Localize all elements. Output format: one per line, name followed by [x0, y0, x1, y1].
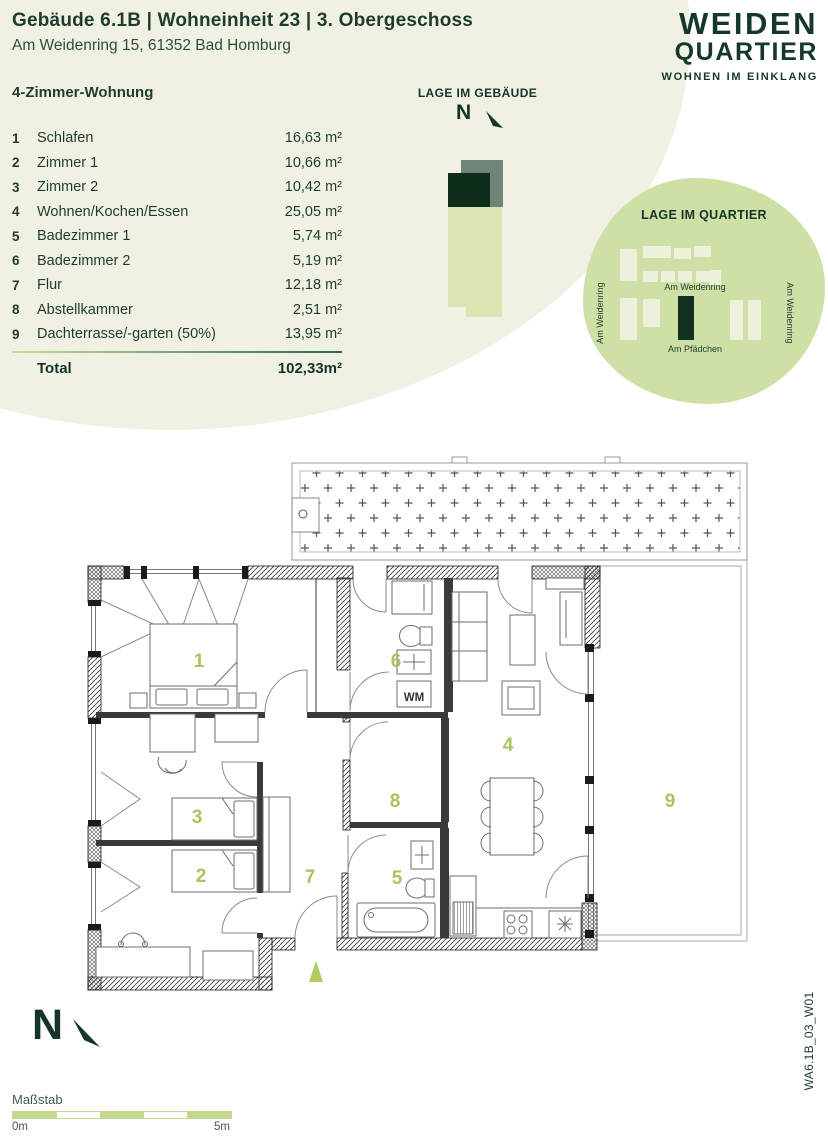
- room-name: Badezimmer 2: [37, 253, 293, 269]
- room-number: 3: [12, 180, 37, 195]
- table-row: 7Flur12,18 m²: [12, 273, 342, 298]
- apartment-type-label: 4-Zimmer-Wohnung: [12, 84, 153, 101]
- room-area: 16,63 m²: [285, 130, 342, 146]
- quarter-building: [620, 249, 637, 281]
- quarter-building: [643, 299, 660, 327]
- plan-room-number-4: 4: [503, 735, 514, 756]
- roof-garden: [292, 457, 747, 560]
- table-row: 9Dachterrasse/-garten (50%)13,95 m²: [12, 322, 342, 347]
- room-name: Zimmer 1: [37, 155, 285, 171]
- room-number: 5: [12, 229, 37, 244]
- table-row: 3Zimmer 210,42 m²: [12, 175, 342, 200]
- quarter-building: [643, 246, 671, 258]
- plan-room-number-3: 3: [192, 807, 203, 828]
- scale-segment: [57, 1112, 101, 1118]
- plan-room-number-7: 7: [305, 867, 316, 888]
- table-row: 2Zimmer 110,66 m²: [12, 151, 342, 176]
- plan-code: WA6.1B_03_W01: [802, 980, 816, 1102]
- street-label-left: Am Weidenring: [595, 268, 605, 358]
- scale-segment: [100, 1112, 144, 1118]
- compass-north-letter: N: [32, 1004, 63, 1047]
- total-row: Total 102,33m²: [12, 353, 342, 385]
- scale-label: Maßstab: [12, 1092, 63, 1107]
- logo-word-weiden: WEIDEN: [662, 8, 818, 39]
- table-row: 1Schlafen16,63 m²: [12, 126, 342, 151]
- address-line: Am Weidenring 15, 61352 Bad Homburg: [12, 37, 291, 55]
- quarter-building: [674, 248, 691, 259]
- room-area: 2,51 m²: [293, 302, 342, 318]
- room-number: 7: [12, 278, 37, 293]
- table-row: 4Wohnen/Kochen/Essen25,05 m²: [12, 200, 342, 225]
- entrance-triangle-icon: [309, 961, 323, 982]
- quarter-map-blob: LAGE IM QUARTIER Am Weidenring Am Pfädch…: [583, 178, 825, 404]
- quarter-building: [730, 300, 743, 340]
- table-row: 5Badezimmer 15,74 m²: [12, 224, 342, 249]
- quarter-building: [661, 271, 675, 282]
- room-number: 8: [12, 302, 37, 317]
- total-area: 102,33m²: [278, 360, 342, 377]
- room-number: 4: [12, 204, 37, 219]
- building-block-unit: [448, 173, 490, 210]
- brand-logo: WEIDEN QUARTIER WOHNEN IM EINKLANG: [662, 8, 818, 83]
- building-north-letter: N: [456, 101, 471, 125]
- room-area: 5,19 m²: [293, 253, 342, 269]
- scale-start-label: 0m: [12, 1121, 28, 1133]
- room-area: 13,95 m²: [285, 326, 342, 342]
- building-location-title: LAGE IM GEBÄUDE: [400, 86, 555, 100]
- quarter-building: [678, 271, 692, 282]
- room-name: Schlafen: [37, 130, 285, 146]
- room-name: Dachterrasse/-garten (50%): [37, 326, 285, 342]
- room-name: Wohnen/Kochen/Essen: [37, 204, 285, 220]
- room-number: 9: [12, 327, 37, 342]
- logo-word-quartier: QUARTIER: [662, 39, 818, 66]
- scale-end-label: 5m: [214, 1121, 230, 1133]
- plan-room-number-9: 9: [665, 791, 676, 812]
- plan-room-number-1: 1: [194, 651, 205, 672]
- quarter-building: [748, 300, 761, 340]
- quarter-building-highlight: [678, 296, 694, 340]
- room-table: 1Schlafen16,63 m² 2Zimmer 110,66 m² 3Zim…: [12, 126, 342, 385]
- quarter-building: [696, 271, 710, 282]
- page-title: Gebäude 6.1B | Wohneinheit 23 | 3. Oberg…: [12, 10, 473, 32]
- street-label-right: Am Weidenring: [785, 268, 795, 358]
- terrace-boundary: [594, 560, 747, 941]
- logo-tagline: WOHNEN IM EINKLANG: [662, 71, 818, 83]
- table-row: 8Abstellkammer2,51 m²: [12, 298, 342, 323]
- street-label-bottom: Am Pfädchen: [640, 344, 750, 354]
- building-block-light-step: [466, 305, 502, 317]
- table-row: 6Badezimmer 25,19 m²: [12, 249, 342, 274]
- room-number: 1: [12, 131, 37, 146]
- building-block-light: [448, 207, 502, 307]
- scale-segment: [13, 1112, 57, 1118]
- room-number: 2: [12, 155, 37, 170]
- room-area: 5,74 m²: [293, 228, 342, 244]
- room-number: 6: [12, 253, 37, 268]
- plan-room-number-8: 8: [390, 791, 401, 812]
- quarter-building: [643, 271, 658, 282]
- room-name: Abstellkammer: [37, 302, 293, 318]
- room-name: Badezimmer 1: [37, 228, 293, 244]
- quarter-location-title: LAGE IM QUARTIER: [583, 208, 825, 222]
- floorplan-document: Gebäude 6.1B | Wohneinheit 23 | 3. Oberg…: [0, 0, 828, 1143]
- north-needle-large-icon: [73, 1019, 100, 1047]
- plan-room-number-2: 2: [196, 866, 207, 887]
- room-name: Flur: [37, 277, 285, 293]
- room-area: 10,42 m²: [285, 179, 342, 195]
- room-name: Zimmer 2: [37, 179, 285, 195]
- scale-segment: [187, 1112, 231, 1118]
- street-label-center: Am Weidenring: [640, 282, 750, 292]
- quarter-building: [620, 298, 637, 340]
- room-area: 25,05 m²: [285, 204, 342, 220]
- room-area: 12,18 m²: [285, 277, 342, 293]
- plan-room-number-5: 5: [392, 868, 403, 889]
- washing-machine-label: WM: [404, 692, 424, 704]
- room-area: 10,66 m²: [285, 155, 342, 171]
- plan-room-number-6: 6: [391, 651, 402, 672]
- quarter-building: [694, 246, 711, 257]
- scale-bar: [12, 1111, 232, 1119]
- total-label: Total: [12, 360, 278, 377]
- scale-segment: [144, 1112, 188, 1118]
- north-needle-small-icon: [486, 111, 503, 128]
